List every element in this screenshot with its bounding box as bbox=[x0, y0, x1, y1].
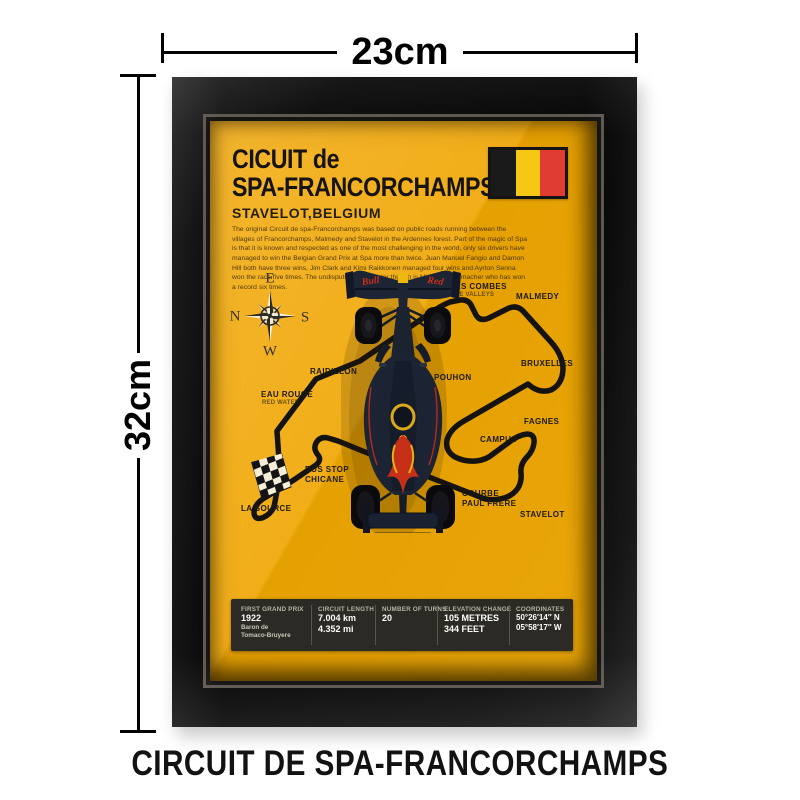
dim-width-label: 23cm bbox=[351, 31, 448, 74]
label-eau-rouge-sub: RED WATER bbox=[262, 400, 299, 406]
stats-bar: FIRST GRAND PRIX 1922 Baron de Tomaco-Br… bbox=[231, 599, 573, 651]
dim-height-line-top bbox=[137, 77, 140, 353]
label-bruxelles: BRUXELLES bbox=[521, 359, 573, 369]
stat-value: 4.352 mi bbox=[318, 624, 369, 635]
stat-elevation-change: ELEVATION CHANGE 105 METRES 344 FEET bbox=[437, 605, 509, 645]
label-la-source: LA SOURCE bbox=[241, 504, 291, 514]
stat-value: 344 FEET bbox=[444, 624, 503, 635]
product-caption: CIRCUIT DE SPA-FRANCORCHAMPS bbox=[0, 744, 800, 784]
label-malmedy: MALMEDY bbox=[516, 292, 559, 302]
stat-value: 50°26′14″ N bbox=[516, 613, 563, 623]
dim-height-label: 32cm bbox=[117, 359, 159, 451]
dim-height-line-bottom bbox=[137, 458, 140, 730]
stat-subvalue: Tomaco-Bruyere bbox=[241, 632, 305, 640]
product-caption-text: CIRCUIT DE SPA-FRANCORCHAMPS bbox=[132, 744, 669, 784]
stat-value: 20 bbox=[382, 613, 431, 624]
stat-circuit-length: CIRCUIT LENGTH 7.004 km 4.352 mi bbox=[311, 605, 375, 645]
label-campus: CAMPUS bbox=[480, 435, 517, 445]
frame-inner-lip: CICUIT de SPA-FRANCORCHAMPS STAVELOT,BEL… bbox=[203, 114, 604, 688]
label-courbe-1: COURBE bbox=[462, 489, 499, 499]
stat-first-grand-prix: FIRST GRAND PRIX 1922 Baron de Tomaco-Br… bbox=[235, 605, 311, 645]
dim-width-line-left bbox=[162, 51, 337, 54]
stat-label: CIRCUIT LENGTH bbox=[318, 606, 369, 613]
poster: CICUIT de SPA-FRANCORCHAMPS STAVELOT,BEL… bbox=[210, 121, 597, 681]
stat-value: 05°58′17″ W bbox=[516, 623, 563, 633]
picture-frame: CICUIT de SPA-FRANCORCHAMPS STAVELOT,BEL… bbox=[172, 77, 637, 727]
stat-coordinates: COORDINATES 50°26′14″ N 05°58′17″ W bbox=[509, 605, 569, 645]
dim-height-tick-bottom bbox=[120, 730, 156, 733]
label-eau-rouge: EAU ROUGE bbox=[261, 390, 313, 400]
dim-width: 23cm bbox=[162, 30, 638, 74]
stat-value: 7.004 km bbox=[318, 613, 369, 624]
stat-label: ELEVATION CHANGE bbox=[444, 606, 503, 613]
stat-label: NUMBER OF TURNS bbox=[382, 606, 431, 613]
label-stavelot: STAVELOT bbox=[520, 510, 565, 520]
dim-width-line-right bbox=[463, 51, 638, 54]
product-photo: 23cm 32cm CICUIT de SPA-FRANCORCHAMPS ST… bbox=[0, 0, 800, 800]
stat-value: 1922 bbox=[241, 613, 305, 624]
stat-value: 105 METRES bbox=[444, 613, 503, 624]
stat-subvalue: Baron de bbox=[241, 624, 305, 632]
stat-number-of-turns: NUMBER OF TURNS 20 bbox=[375, 605, 437, 645]
label-fagnes: FAGNES bbox=[524, 417, 559, 427]
label-courbe-2: PAUL FRERE bbox=[462, 499, 516, 509]
stat-label: FIRST GRAND PRIX bbox=[241, 606, 305, 613]
f1-model-car: Bull Red bbox=[341, 267, 465, 533]
stat-label: COORDINATES bbox=[516, 606, 563, 613]
label-bus-stop-2: CHICANE bbox=[305, 475, 344, 485]
